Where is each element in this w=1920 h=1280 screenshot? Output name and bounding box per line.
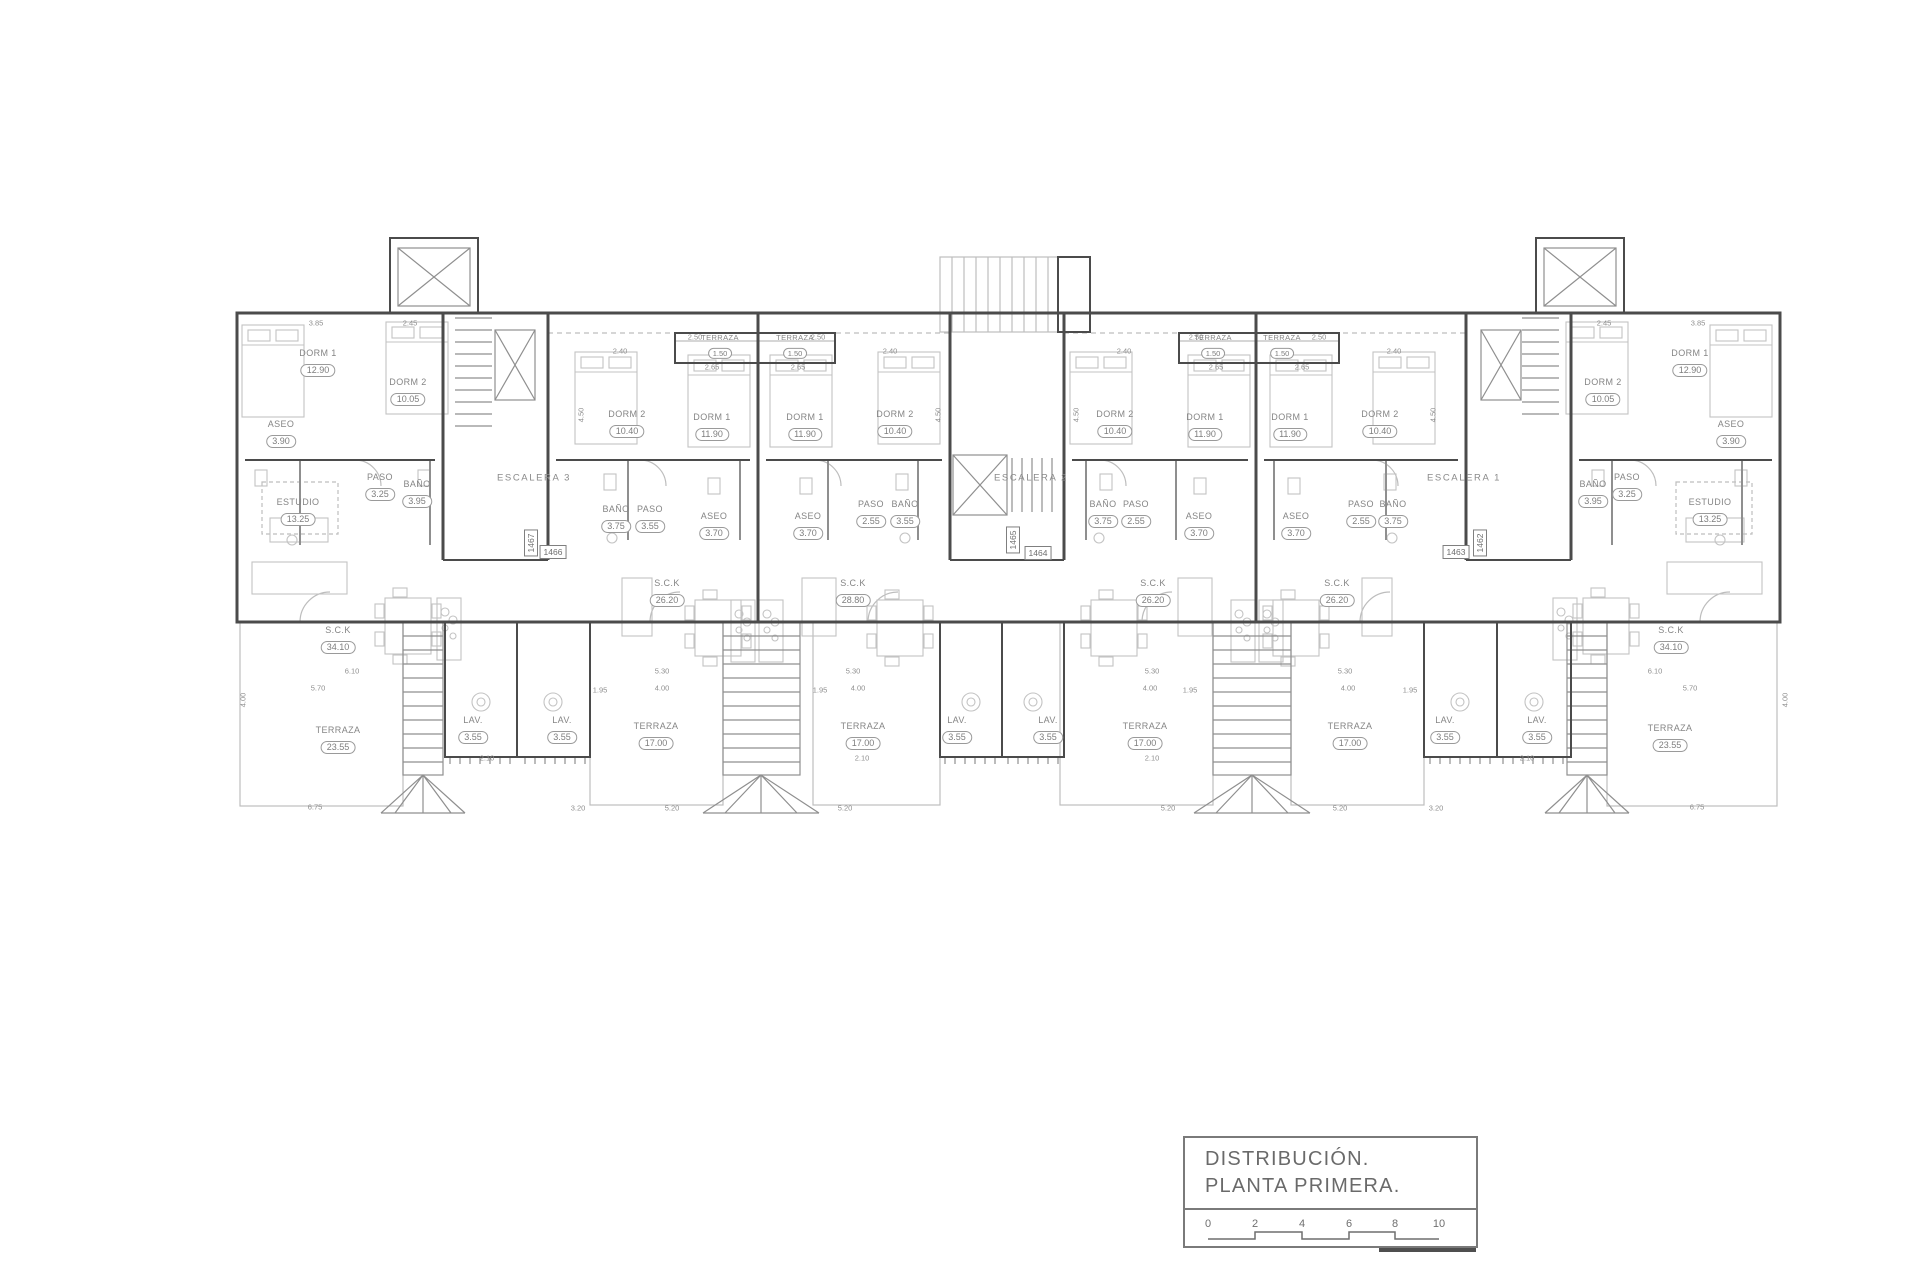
room-area: 2.55 [856,515,886,528]
room-label: TERRAZA17.00 [1328,721,1373,751]
room-area: 1.50 [1201,348,1226,359]
dimension-text: 5.20 [1161,804,1176,813]
room-name: TERRAZA [1263,333,1301,342]
dimension-text: 2.10 [1145,754,1160,763]
room-area: 1.50 [708,348,733,359]
dimension-text: 4.50 [1429,408,1438,423]
title-block: DISTRIBUCIÓN. PLANTA PRIMERA. 0246810 [1183,1136,1478,1248]
room-name: DORM 2 [1361,409,1398,420]
dimension-text: 5.30 [1338,667,1353,676]
room-name: TERRAZA [701,333,739,342]
room-area: 3.55 [1430,731,1460,744]
dimension-text: 3.85 [1691,319,1706,328]
room-name: BAÑO [1578,479,1608,490]
room-name: PASO [1612,472,1642,483]
room-label: ASEO3.70 [1281,511,1311,541]
room-label: S.C.K26.20 [1136,578,1171,608]
room-label: PASO3.25 [365,472,395,502]
room-name: TERRAZA [776,333,814,342]
room-name: PASO [856,499,886,510]
room-name: PASO [365,472,395,483]
room-label: DORM 210.40 [1096,409,1133,439]
room-area: 3.90 [1716,435,1746,448]
room-area: 10.40 [610,425,645,438]
room-label: DORM 210.05 [389,377,426,407]
room-name: DORM 2 [389,377,426,388]
room-name: LAV. [1033,715,1063,726]
scale-tick: 0 [1205,1218,1211,1230]
dimension-text: 2.50 [1312,333,1327,342]
dimension-text: 6.10 [1648,667,1663,676]
title-block-accent-bar [1379,1248,1476,1252]
dimension-text: 6.75 [308,803,323,812]
unit-number-tag: 1462 [1473,530,1487,557]
floorplan-linework [0,0,1920,1280]
room-name: DORM 2 [1096,409,1133,420]
room-label: TERRAZA1.50 [776,333,814,361]
room-label: LAV.3.55 [547,715,577,745]
dimension-text: 4.00 [1143,684,1158,693]
dimension-text: 5.20 [1333,804,1348,813]
room-name: ESTUDIO [277,497,320,508]
room-area: 3.55 [1033,731,1063,744]
room-name: ASEO [793,511,823,522]
room-area: 17.00 [639,737,674,750]
room-area: 26.20 [1320,594,1355,607]
dimension-text: 4.00 [655,684,670,693]
room-name: DORM 1 [1671,348,1708,359]
room-label: BAÑO3.95 [402,479,432,509]
room-name: TERRAZA [1648,723,1693,734]
unit-number-tag: 1467 [524,530,538,557]
room-label: PASO2.55 [1346,499,1376,529]
stair-label: ESCALERA 2 [994,473,1068,484]
room-label: ASEO3.70 [1184,511,1214,541]
dimension-text: 3.85 [309,319,324,328]
room-area: 10.40 [1363,425,1398,438]
room-name: DORM 1 [1186,412,1223,423]
room-area: 3.55 [1522,731,1552,744]
room-area: 13.25 [1693,513,1728,526]
dimension-text: 4.50 [1072,408,1081,423]
room-name: S.C.K [1136,578,1171,589]
room-name: LAV. [942,715,972,726]
room-name: LAV. [1522,715,1552,726]
room-name: DORM 1 [1271,412,1308,423]
room-area: 3.55 [458,731,488,744]
dimension-text: 2.10 [1520,754,1535,763]
dimension-text: 4.00 [1781,693,1790,708]
room-area: 2.55 [1121,515,1151,528]
room-area: 10.05 [1586,393,1621,406]
dimension-text: 2.40 [1117,347,1132,356]
room-area: 3.75 [601,520,631,533]
room-label: LAV.3.55 [1522,715,1552,745]
room-area: 3.55 [635,520,665,533]
room-name: DORM 2 [608,409,645,420]
room-name: DORM 1 [299,348,336,359]
room-label: PASO3.25 [1612,472,1642,502]
dimension-text: 2.40 [883,347,898,356]
unit-number-tag: 1463 [1443,545,1470,559]
room-label: S.C.K34.10 [321,625,356,655]
dimension-text: 2.65 [705,363,720,372]
room-label: DORM 210.05 [1584,377,1621,407]
room-label: LAV.3.55 [942,715,972,745]
dimension-text: 5.20 [838,804,853,813]
room-name: DORM 1 [786,412,823,423]
room-label: TERRAZA17.00 [1123,721,1168,751]
room-label: ESTUDIO13.25 [277,497,320,527]
dimension-text: 5.70 [1683,684,1698,693]
room-label: DORM 112.90 [1671,348,1708,378]
sheet-title-line2: PLANTA PRIMERA. [1205,1173,1476,1200]
room-name: LAV. [458,715,488,726]
dimension-text: 2.40 [1387,347,1402,356]
room-name: TERRAZA [634,721,679,732]
room-label: DORM 111.90 [1186,412,1223,442]
room-area: 13.25 [281,513,316,526]
room-label: DORM 210.40 [608,409,645,439]
room-label: DORM 111.90 [693,412,730,442]
room-label: ASEO3.70 [793,511,823,541]
dimension-text: 4.50 [577,408,586,423]
room-name: BAÑO [601,504,631,515]
room-name: ASEO [699,511,729,522]
dimension-text: 3.20 [571,804,586,813]
room-name: DORM 2 [1584,377,1621,388]
room-name: LAV. [1430,715,1460,726]
sheet-title: DISTRIBUCIÓN. PLANTA PRIMERA. [1185,1138,1476,1200]
stair-label: ESCALERA 3 [497,473,571,484]
room-area: 3.75 [1088,515,1118,528]
room-name: DORM 1 [693,412,730,423]
room-name: TERRAZA [841,721,886,732]
room-area: 2.55 [1346,515,1376,528]
room-area: 3.90 [266,435,296,448]
dimension-text: 6.10 [345,667,360,676]
room-name: S.C.K [650,578,685,589]
dimension-text: 1.95 [813,686,828,695]
room-area: 3.25 [365,488,395,501]
room-label: PASO2.55 [856,499,886,529]
room-label: ASEO3.90 [266,419,296,449]
room-name: ASEO [1281,511,1311,522]
dimension-text: 2.65 [1209,363,1224,372]
room-label: ASEO3.70 [699,511,729,541]
room-name: TERRAZA [1328,721,1373,732]
sheet-title-line1: DISTRIBUCIÓN. [1205,1146,1476,1173]
room-label: TERRAZA23.55 [316,725,361,755]
room-area: 3.70 [1281,527,1311,540]
scale-tick: 10 [1433,1218,1445,1230]
room-label: DORM 111.90 [786,412,823,442]
room-area: 11.90 [695,428,729,441]
room-area: 3.95 [402,495,432,508]
room-area: 23.55 [321,741,356,754]
dimension-text: 5.30 [1145,667,1160,676]
room-area: 10.40 [878,425,913,438]
dimension-text: 4.00 [851,684,866,693]
drawing-sheet: DORM 112.90DORM 210.05ASEO3.90PASO3.25BA… [0,0,1920,1280]
dimension-text: 1.95 [593,686,608,695]
room-area: 34.10 [321,641,356,654]
room-area: 28.80 [836,594,871,607]
room-name: ASEO [1716,419,1746,430]
room-label: S.C.K26.20 [650,578,685,608]
room-label: DORM 210.40 [1361,409,1398,439]
dimension-text: 2.65 [1295,363,1310,372]
dimension-text: 2.45 [403,319,418,328]
room-area: 10.05 [391,393,426,406]
room-area: 3.55 [890,515,920,528]
room-label: TERRAZA17.00 [841,721,886,751]
room-area: 1.50 [783,348,808,359]
dimension-text: 2.45 [1597,319,1612,328]
room-name: TERRAZA [1194,333,1232,342]
room-label: TERRAZA1.50 [1263,333,1301,361]
scale-bar: 0246810 [1185,1208,1476,1250]
dimension-text: 5.20 [665,804,680,813]
room-name: PASO [1346,499,1376,510]
room-label: LAV.3.55 [458,715,488,745]
dimension-text: 4.50 [934,408,943,423]
dimension-text: 6.75 [1690,803,1705,812]
dimension-text: 2.65 [791,363,806,372]
room-name: BAÑO [402,479,432,490]
room-label: ASEO3.90 [1716,419,1746,449]
room-name: BAÑO [1088,499,1118,510]
room-area: 11.90 [788,428,822,441]
room-area: 3.55 [547,731,577,744]
room-area: 10.40 [1098,425,1133,438]
room-area: 23.55 [1653,739,1688,752]
room-name: S.C.K [1320,578,1355,589]
room-name: PASO [635,504,665,515]
scale-tick: 8 [1392,1218,1398,1230]
room-label: BAÑO3.95 [1578,479,1608,509]
room-area: 3.55 [942,731,972,744]
room-area: 17.00 [1333,737,1368,750]
room-label: TERRAZA17.00 [634,721,679,751]
room-area: 11.90 [1188,428,1222,441]
room-label: LAV.3.55 [1033,715,1063,745]
scale-tick: 2 [1252,1218,1258,1230]
room-area: 3.70 [1184,527,1214,540]
dimension-text: 2.40 [613,347,628,356]
room-area: 17.00 [1128,737,1163,750]
scale-tick: 4 [1299,1218,1305,1230]
room-label: TERRAZA1.50 [701,333,739,361]
room-name: BAÑO [1378,499,1408,510]
room-label: TERRAZA23.55 [1648,723,1693,753]
room-name: S.C.K [836,578,871,589]
room-name: PASO [1121,499,1151,510]
dimension-text: 5.30 [846,667,861,676]
room-name: LAV. [547,715,577,726]
room-label: PASO2.55 [1121,499,1151,529]
room-name: S.C.K [1654,625,1689,636]
room-area: 1.50 [1270,348,1295,359]
room-name: S.C.K [321,625,356,636]
room-label: BAÑO3.55 [890,499,920,529]
unit-number-tag: 1466 [540,545,567,559]
dimension-text: 5.70 [311,684,326,693]
stair-label: ESCALERA 1 [1427,473,1501,484]
room-area: 12.90 [1673,364,1708,377]
room-area: 26.20 [1136,594,1171,607]
room-name: TERRAZA [1123,721,1168,732]
room-name: BAÑO [890,499,920,510]
dimension-text: 1.95 [1403,686,1418,695]
unit-number-tag: 1464 [1025,546,1052,560]
room-area: 3.70 [793,527,823,540]
room-label: DORM 210.40 [876,409,913,439]
room-area: 11.90 [1273,428,1307,441]
dimension-text: 4.00 [239,693,248,708]
scale-tick: 6 [1346,1218,1352,1230]
room-label: ESTUDIO13.25 [1689,497,1732,527]
room-name: ESTUDIO [1689,497,1732,508]
room-name: TERRAZA [316,725,361,736]
room-name: ASEO [266,419,296,430]
room-label: LAV.3.55 [1430,715,1460,745]
room-label: S.C.K28.80 [836,578,871,608]
room-label: BAÑO3.75 [1378,499,1408,529]
room-area: 34.10 [1654,641,1689,654]
room-label: DORM 111.90 [1271,412,1308,442]
room-area: 17.00 [846,737,881,750]
room-label: TERRAZA1.50 [1194,333,1232,361]
dimension-text: 4.00 [1341,684,1356,693]
room-label: S.C.K26.20 [1320,578,1355,608]
room-label: BAÑO3.75 [1088,499,1118,529]
room-name: ASEO [1184,511,1214,522]
room-label: PASO3.55 [635,504,665,534]
room-label: DORM 112.90 [299,348,336,378]
room-area: 3.95 [1578,495,1608,508]
room-label: BAÑO3.75 [601,504,631,534]
dimension-text: 2.10 [855,754,870,763]
room-area: 3.25 [1612,488,1642,501]
room-label: S.C.K34.10 [1654,625,1689,655]
dimension-text: 2.10 [480,754,495,763]
room-name: DORM 2 [876,409,913,420]
room-area: 12.90 [301,364,336,377]
room-area: 3.75 [1378,515,1408,528]
dimension-text: 3.20 [1429,804,1444,813]
room-area: 26.20 [650,594,685,607]
room-area: 3.70 [699,527,729,540]
dimension-text: 1.95 [1183,686,1198,695]
unit-number-tag: 1465 [1006,527,1020,554]
dimension-text: 5.30 [655,667,670,676]
